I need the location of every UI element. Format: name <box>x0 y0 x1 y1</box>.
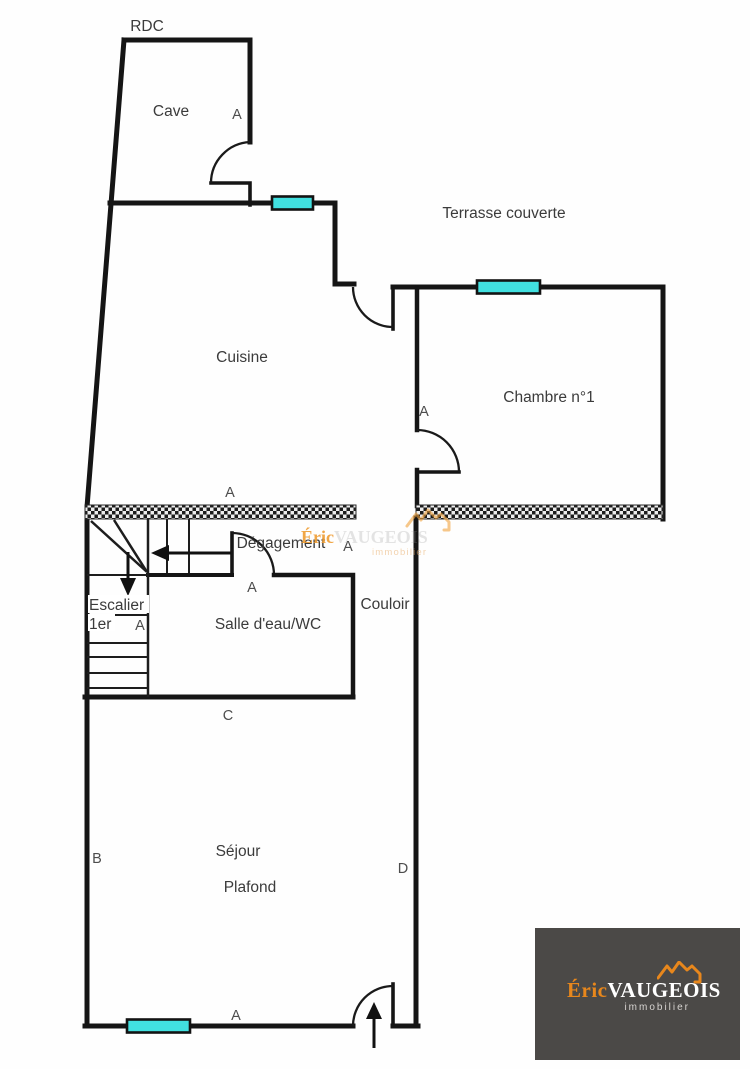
marker-d: D <box>398 861 408 877</box>
entrance-arrow-icon <box>366 1002 382 1019</box>
watermark-brand-first: Éric <box>301 526 334 547</box>
floor-plan-drawing: Escalier 1er RDC Cave Terrasse couverte … <box>0 0 750 1069</box>
cave-door-arc-icon <box>211 142 250 183</box>
watermark-brand-rest: VAUGEOIS <box>334 527 428 547</box>
marker-a-cuisine: A <box>225 485 235 501</box>
marker-b: B <box>92 851 102 867</box>
window-sejour <box>127 1020 190 1033</box>
agency-logo-brand-first: Éric <box>567 978 607 1002</box>
agency-roofline-icon <box>657 961 703 985</box>
chambre-door-arc-icon <box>417 430 459 472</box>
staircase: Escalier 1er <box>87 519 231 697</box>
marker-a-chambre: A <box>419 404 429 420</box>
marker-c: C <box>223 708 233 724</box>
room-label-cuisine: Cuisine <box>216 349 268 366</box>
stair-level-label: 1er <box>89 616 111 633</box>
marker-a-escalier: A <box>135 618 145 634</box>
stair-down-arrow-icon <box>120 578 136 596</box>
agency-logo: ÉricVAUGEOIS immobilier <box>535 928 740 1060</box>
room-label-plafond: Plafond <box>224 879 277 896</box>
room-label-cave: Cave <box>153 103 189 120</box>
stair-left-arrow-icon <box>151 545 169 561</box>
cave-top-right-wall <box>124 40 250 142</box>
entrance-indicator <box>366 1002 382 1048</box>
window-cuisine-terrasse <box>272 197 313 210</box>
room-labels: RDC Cave Terrasse couverte Cuisine Chamb… <box>130 18 595 896</box>
floor-plan-page: Escalier 1er RDC Cave Terrasse couverte … <box>0 0 750 1069</box>
watermark-brand: ÉricVAUGEOIS <box>301 526 428 547</box>
window-chambre <box>477 281 540 294</box>
stair-label: Escalier <box>89 597 144 614</box>
marker-a-sejour: A <box>231 1008 241 1024</box>
floor-label: RDC <box>130 18 164 35</box>
cuisine-door-arc-icon <box>353 287 393 327</box>
room-label-terrasse: Terrasse couverte <box>442 205 565 222</box>
room-label-salle-eau: Salle d'eau/WC <box>215 616 321 633</box>
marker-a-salle-eau: A <box>247 580 257 596</box>
cuisine-terrasse-wall <box>110 203 354 284</box>
room-label-chambre: Chambre n°1 <box>503 389 595 406</box>
watermark-tagline: immobilier <box>372 547 427 558</box>
hatched-wall-left <box>85 505 356 519</box>
marker-a-cave: A <box>232 107 242 123</box>
agency-logo-tagline: immobilier <box>624 1002 690 1013</box>
stair-winder-diagonals <box>91 520 147 572</box>
salle-eau-top-right-wall <box>274 575 353 697</box>
room-label-sejour: Séjour <box>216 843 261 860</box>
room-label-couloir: Couloir <box>360 596 409 613</box>
windows <box>127 197 540 1033</box>
hatched-wall-right <box>416 505 663 519</box>
